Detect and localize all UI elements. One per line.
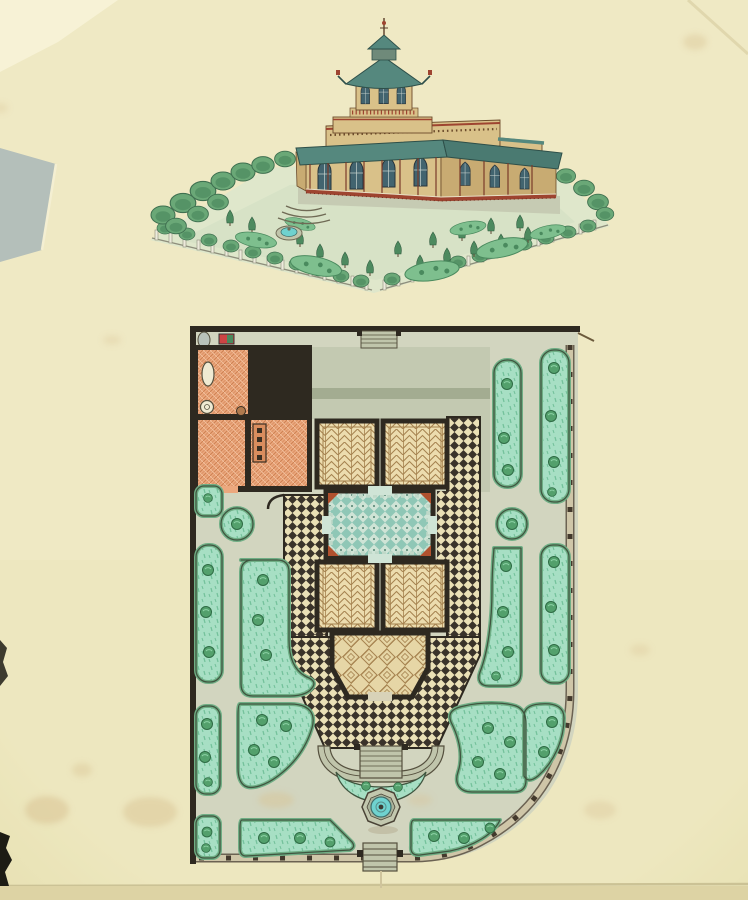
parquet-room-sw (317, 562, 377, 630)
parquet-room-nw (317, 421, 377, 487)
hall-door-south (368, 554, 392, 563)
cupola-drum (372, 48, 396, 60)
parquet-room-ne (383, 421, 447, 487)
hall-door-north (368, 486, 392, 495)
service-wing (194, 345, 312, 493)
bottom-edge-band (0, 886, 748, 900)
salon-bay (332, 633, 428, 701)
hall-door-west (322, 516, 331, 534)
hall-door-east (428, 516, 437, 534)
scanned-sheet (0, 0, 748, 900)
service-room-2 (198, 420, 245, 486)
spire-ball (382, 21, 386, 25)
roof-finial-left (336, 70, 340, 75)
parquet-room-se (383, 562, 447, 630)
drawing (0, 0, 748, 900)
salon-door-south (368, 692, 392, 701)
fountain-perspective (276, 226, 302, 240)
bed-e5 (450, 703, 526, 792)
site-plan (190, 326, 594, 888)
north-entrance-steps (357, 330, 401, 348)
central-hall (322, 486, 437, 563)
roof-finial-right (428, 70, 432, 75)
